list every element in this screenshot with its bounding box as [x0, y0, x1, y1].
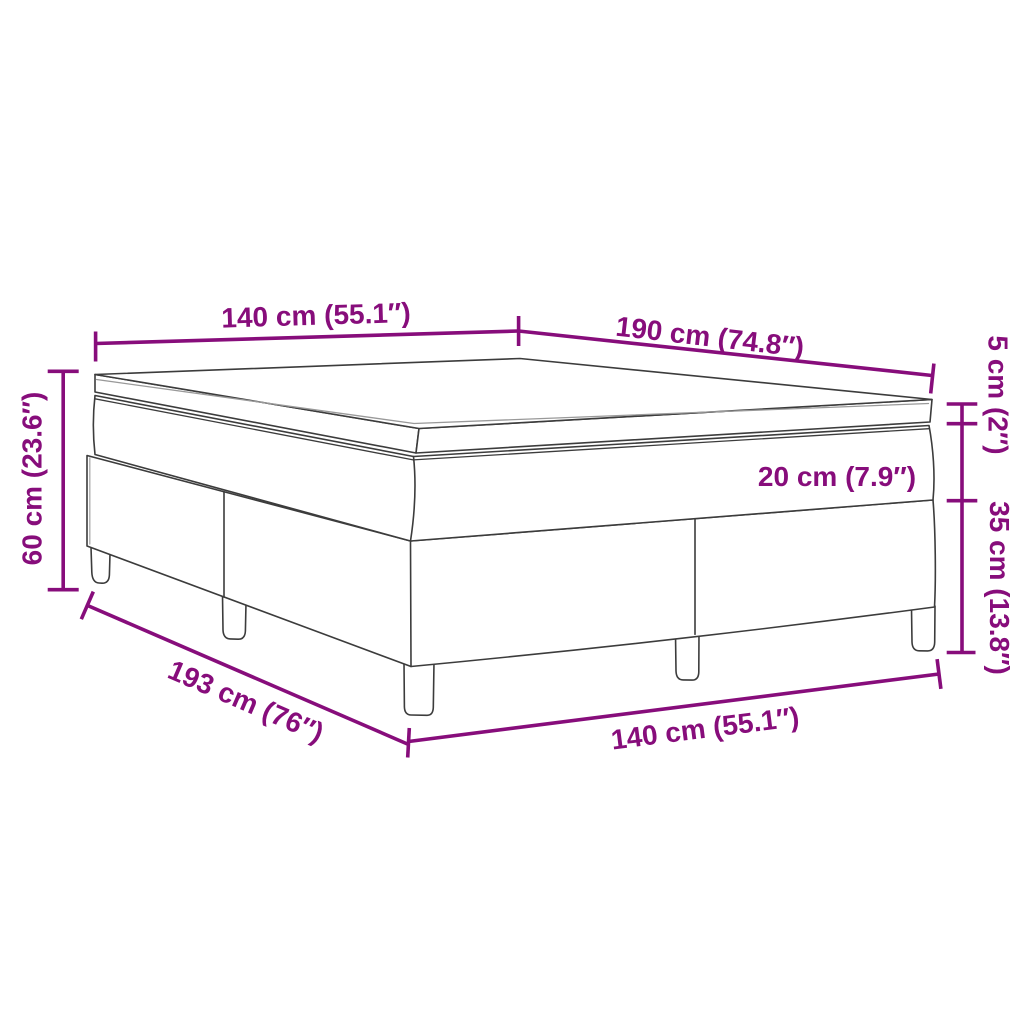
svg-text:60 cm (23.6″): 60 cm (23.6″) — [16, 392, 47, 566]
svg-text:35 cm (13.8″): 35 cm (13.8″) — [984, 501, 1015, 675]
svg-text:5 cm (2″): 5 cm (2″) — [983, 335, 1014, 454]
svg-text:20 cm (7.9″): 20 cm (7.9″) — [758, 461, 916, 492]
svg-text:140 cm (55.1″): 140 cm (55.1″) — [221, 297, 411, 334]
